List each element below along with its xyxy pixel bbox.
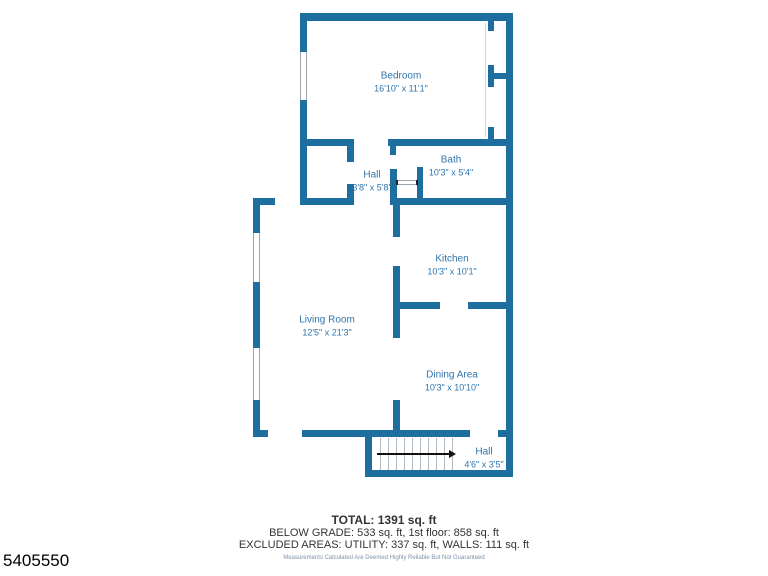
wall-segment bbox=[488, 21, 494, 31]
wall-segment bbox=[388, 139, 513, 146]
bath-pocket-door bbox=[397, 180, 417, 185]
wall-segment bbox=[498, 430, 513, 437]
stair-arrow-head-icon bbox=[449, 450, 456, 458]
room-name: Bath bbox=[429, 154, 473, 167]
window bbox=[253, 348, 260, 400]
room-name: Hall bbox=[352, 169, 391, 182]
excluded-areas-text: EXCLUDED AREAS: UTILITY: 337 sq. ft, WAL… bbox=[0, 539, 768, 551]
room-label-living-room: Living Room 12'5" x 21'3" bbox=[299, 314, 355, 339]
wall-segment bbox=[393, 198, 513, 205]
window bbox=[253, 233, 260, 282]
room-label-kitchen: Kitchen 10'3" x 10'1" bbox=[427, 253, 476, 278]
wall-segment bbox=[253, 282, 260, 348]
room-label-hall-lower: Hall 4'6" x 3'5" bbox=[464, 446, 503, 471]
room-label-bath: Bath 10'3" x 5'4" bbox=[429, 154, 473, 179]
wall-segment bbox=[468, 302, 513, 309]
wall-segment bbox=[393, 198, 400, 237]
room-label-hall-upper: Hall 3'8" x 5'8" bbox=[352, 169, 391, 194]
room-dimensions: 10'3" x 5'4" bbox=[429, 167, 473, 179]
room-dimensions: 3'8" x 5'8" bbox=[352, 182, 391, 194]
room-name: Kitchen bbox=[427, 253, 476, 266]
wall-segment bbox=[253, 430, 268, 437]
wall-segment bbox=[390, 146, 396, 155]
wall-segment bbox=[506, 13, 513, 477]
wall-segment bbox=[300, 139, 354, 146]
wall-segment bbox=[300, 13, 513, 21]
wall-segment bbox=[300, 198, 353, 205]
wall-segment bbox=[347, 146, 354, 162]
room-dimensions: 12'5" x 21'3" bbox=[299, 327, 355, 339]
wall-segment bbox=[393, 400, 400, 437]
closet-track-line bbox=[485, 23, 486, 137]
below-grade-text: BELOW GRADE: 533 sq. ft, 1st floor: 858 … bbox=[0, 527, 768, 539]
wall-segment bbox=[488, 73, 506, 79]
wall-segment bbox=[488, 127, 494, 139]
room-dimensions: 4'6" x 3'5" bbox=[464, 459, 503, 471]
disclaimer-text: Measurements Calculated Are Deemed Highl… bbox=[0, 555, 768, 562]
stair-direction-arrow bbox=[377, 453, 449, 455]
listing-id: 5405550 bbox=[3, 551, 69, 571]
room-label-bedroom: Bedroom 16'10" x 11'1" bbox=[374, 70, 428, 95]
wall-segment bbox=[393, 302, 440, 309]
floor-plan-page: Bedroom 16'10" x 11'1" Hall 3'8" x 5'8" … bbox=[0, 0, 768, 576]
wall-segment bbox=[302, 430, 470, 437]
room-dimensions: 10'3" x 10'1" bbox=[427, 266, 476, 278]
area-summary: TOTAL: 1391 sq. ft BELOW GRADE: 533 sq. … bbox=[0, 514, 768, 562]
window bbox=[300, 52, 307, 100]
room-name: Living Room bbox=[299, 314, 355, 327]
wall-segment bbox=[253, 198, 260, 233]
room-name: Bedroom bbox=[374, 70, 428, 83]
room-dimensions: 10'3" x 10'10" bbox=[425, 382, 479, 394]
wall-segment bbox=[365, 470, 513, 477]
room-dimensions: 16'10" x 11'1" bbox=[374, 83, 428, 95]
wall-segment bbox=[300, 146, 307, 205]
wall-segment bbox=[300, 13, 307, 52]
total-area-text: TOTAL: 1391 sq. ft bbox=[0, 514, 768, 527]
room-name: Hall bbox=[464, 446, 503, 459]
room-label-dining-area: Dining Area 10'3" x 10'10" bbox=[425, 369, 479, 394]
room-name: Dining Area bbox=[425, 369, 479, 382]
